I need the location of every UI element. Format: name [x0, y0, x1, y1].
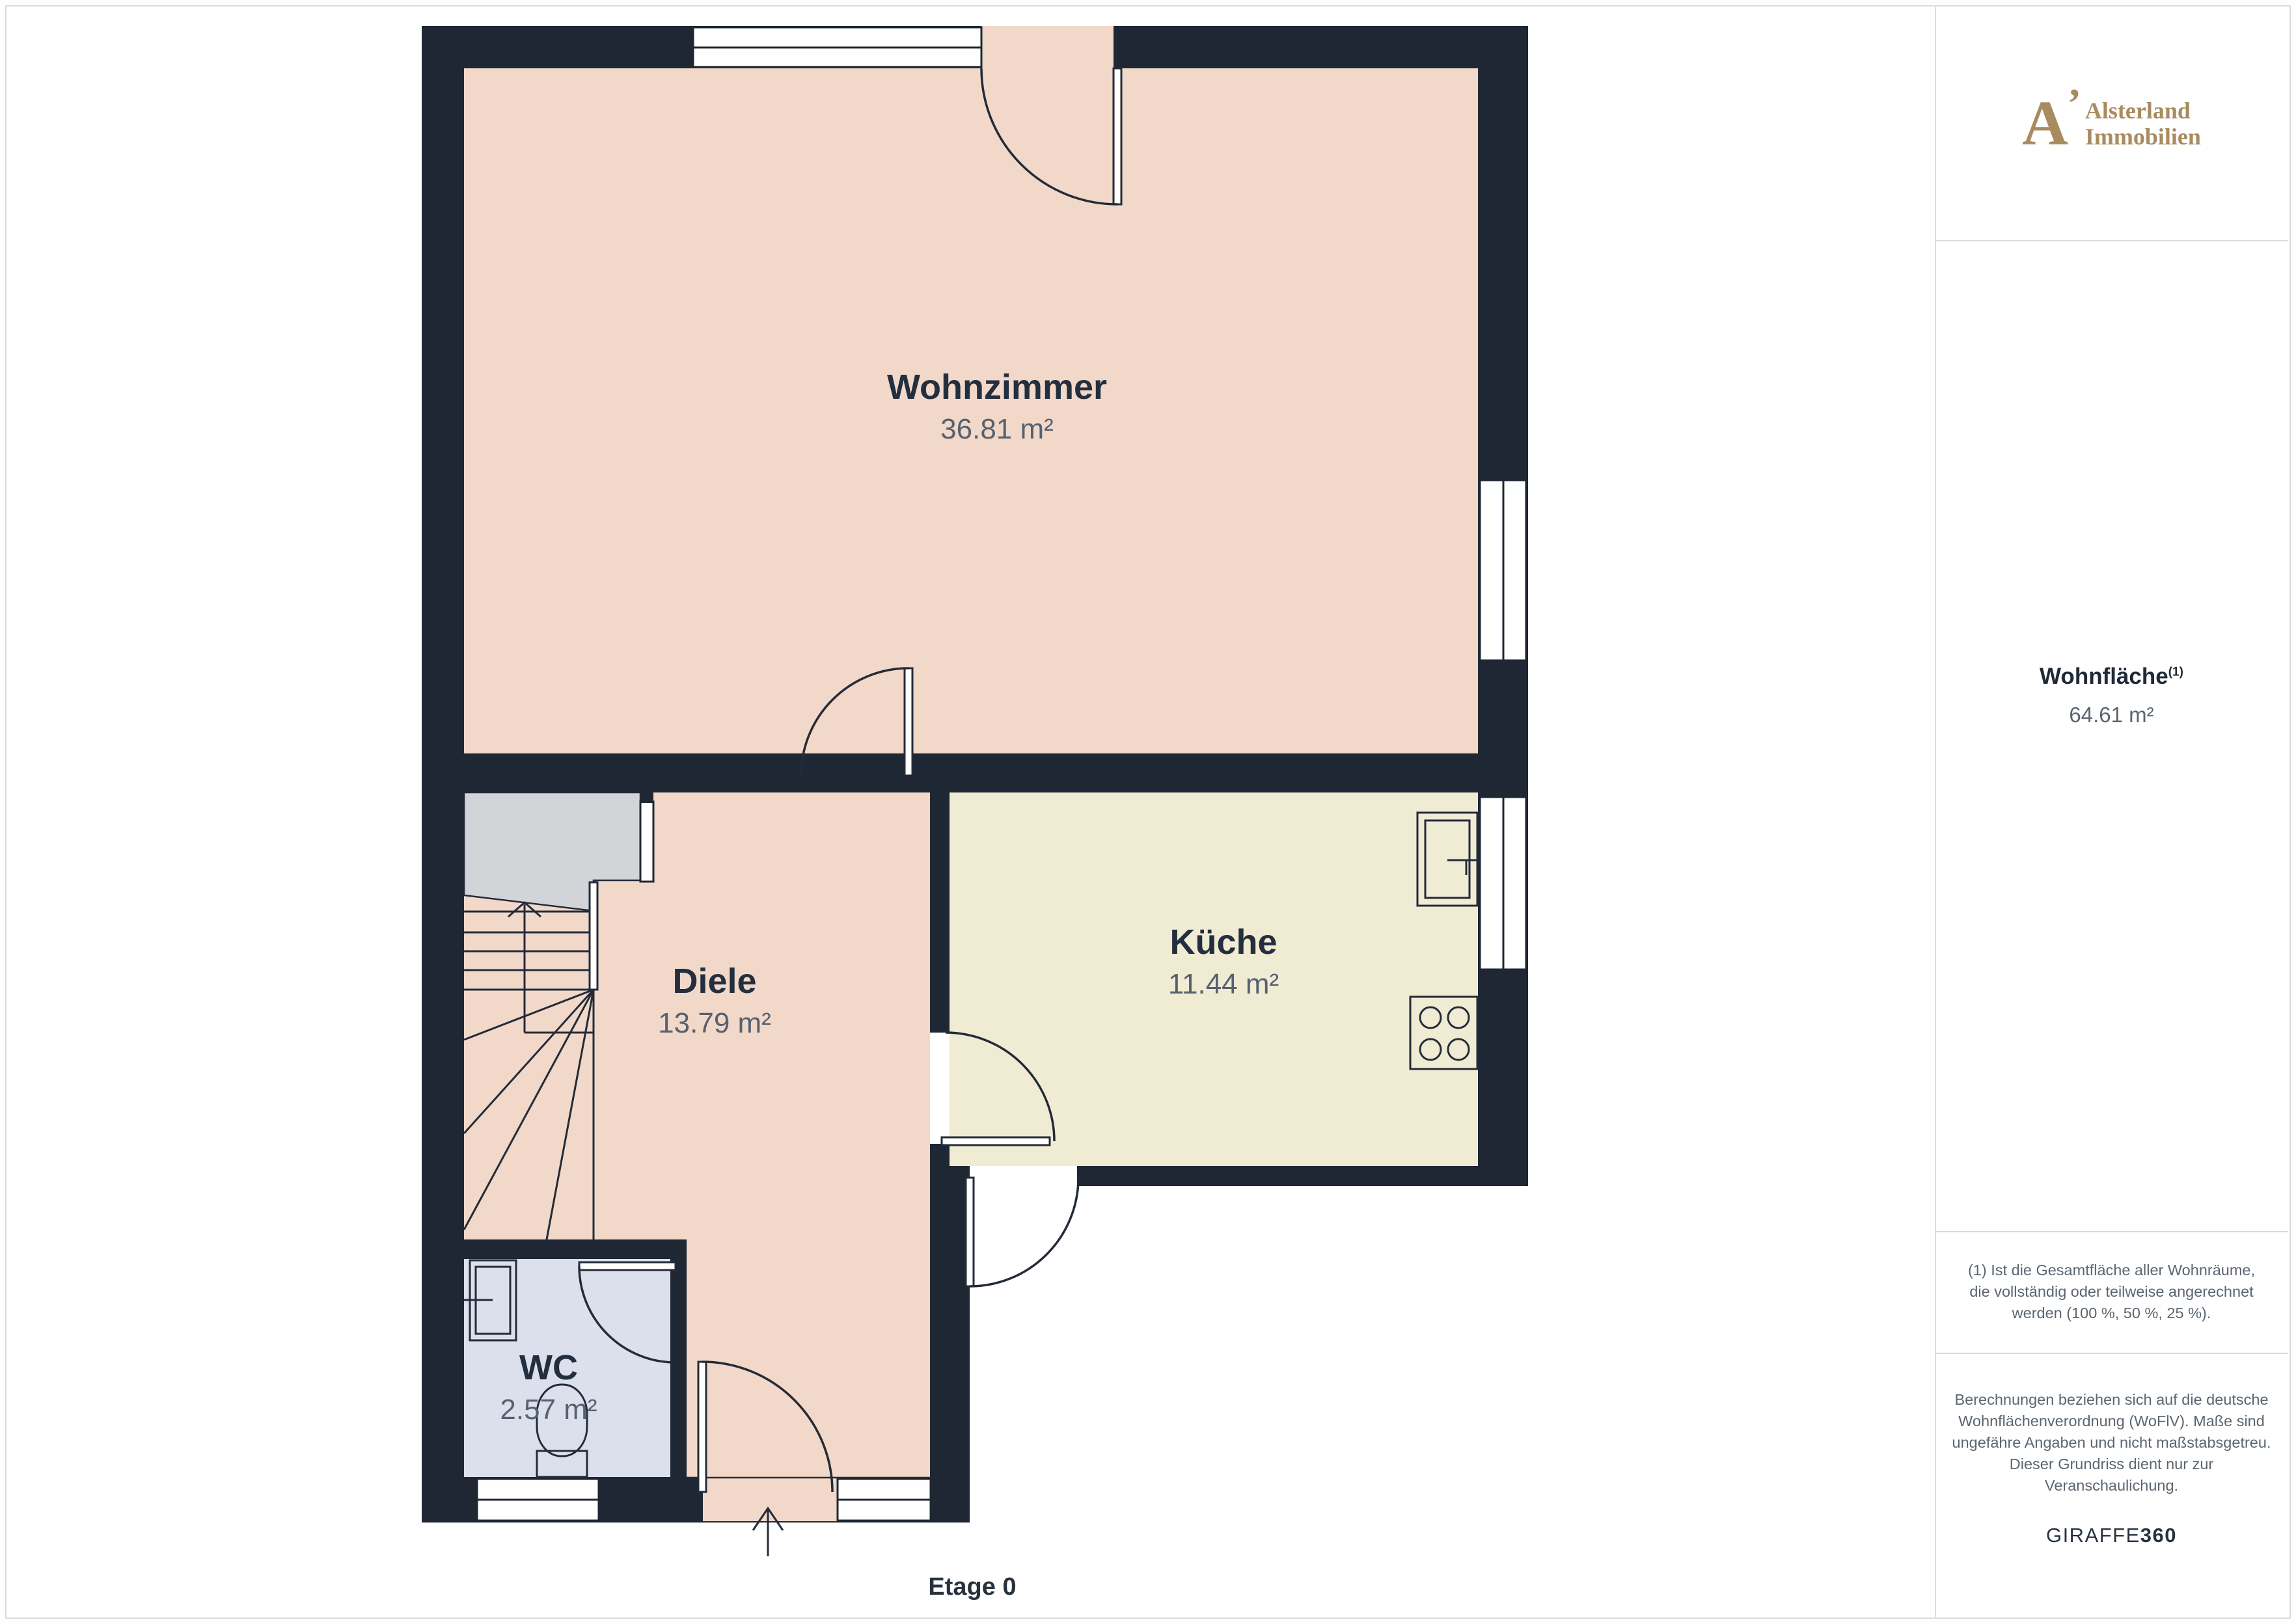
room-label-wohnzimmer: Wohnzimmer 36.81 m²	[887, 368, 1107, 448]
door-leaf-kueche-exterior	[966, 1178, 974, 1286]
stair-rail-wall	[590, 882, 597, 990]
total-area-label: Wohnfläche(1)	[1935, 664, 2288, 690]
stair-partition-cap	[640, 792, 653, 803]
wall-wc-top	[464, 1239, 670, 1259]
room-name: Küche	[1168, 923, 1279, 962]
door-arc-kueche-exterior	[970, 1178, 1078, 1286]
disclaimer-text: Berechnungen beziehen sich auf die deuts…	[1935, 1389, 2288, 1496]
brand-flourish-icon: ’	[2068, 83, 2081, 124]
footnote-ref: (1)	[2168, 665, 2183, 679]
generator-logo-bold: 360	[2140, 1524, 2177, 1547]
room-area: 2.57 m²	[500, 1391, 597, 1428]
generator-logo-normal: GIRAFFE	[2046, 1524, 2140, 1547]
total-area-box: Wohnfläche(1) 64.61 m²	[1935, 664, 2288, 727]
top-door-opening	[981, 26, 1114, 68]
room-label-diele: Diele 13.79 m²	[658, 962, 771, 1042]
entrance-door-threshold	[703, 1477, 838, 1521]
room-name: WC	[500, 1348, 597, 1387]
sidebar-divider-1	[1935, 240, 2288, 241]
brand-box: A’ Alsterland Immobilien	[1935, 7, 2288, 240]
room-label-wc: WC 2.57 m²	[500, 1348, 597, 1429]
door-leaf-wohnzimmer	[905, 668, 912, 776]
wall-kueche-divider-upper	[930, 792, 950, 1033]
wall-wohnzimmer-divider	[464, 753, 1528, 792]
brand-name-line1: Alsterland	[2085, 98, 2201, 124]
wall-kueche-bottom	[1077, 1166, 1528, 1186]
room-label-kueche: Küche 11.44 m²	[1168, 923, 1279, 1003]
room-name: Diele	[658, 962, 771, 1001]
footnote-box: (1) Ist die Gesamtfläche aller Wohnräume…	[1935, 1231, 2288, 1353]
footnote-text: (1) Ist die Gesamtfläche aller Wohnräume…	[1935, 1260, 2288, 1324]
door-leaf-kueche	[942, 1137, 1050, 1145]
floor-level-label: Etage 0	[928, 1573, 1016, 1601]
brand-name: Alsterland Immobilien	[2085, 98, 2201, 150]
door-leaf-wc	[579, 1262, 676, 1270]
brand-name-line2: Immobilien	[2085, 124, 2201, 150]
door-leaf-entrance	[698, 1362, 706, 1492]
door-leaf-terrace	[1114, 68, 1121, 204]
generator-logo: GIRAFFE360	[2046, 1524, 2177, 1547]
total-area-value: 64.61 m²	[1935, 703, 2288, 727]
disclaimer-box: Berechnungen beziehen sich auf die deuts…	[1935, 1353, 2288, 1618]
window-stair-partition	[640, 802, 653, 882]
brand-monogram-icon: A’	[2022, 92, 2068, 156]
room-area: 11.44 m²	[1168, 966, 1279, 1003]
wall-left	[422, 26, 464, 1522]
room-name: Wohnzimmer	[887, 368, 1107, 407]
wall-bottom-right-strip	[930, 1166, 970, 1522]
room-area: 13.79 m²	[658, 1005, 771, 1042]
wall-wc-right	[670, 1239, 687, 1493]
room-area: 36.81 m²	[887, 411, 1107, 448]
floorplan-page: Wohnzimmer 36.81 m² Küche 11.44 m² Diele…	[0, 0, 2296, 1624]
